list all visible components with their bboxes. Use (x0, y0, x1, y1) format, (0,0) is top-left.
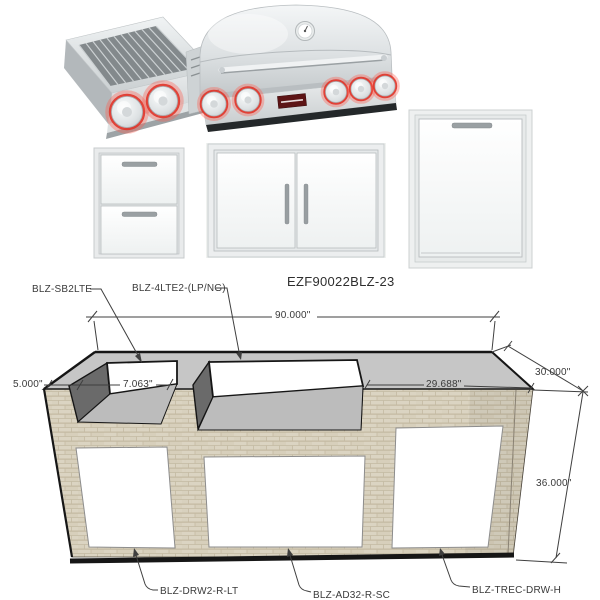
part-label-side-burner: BLZ-SB2LTE (32, 284, 92, 295)
door-left (217, 153, 295, 248)
part-label-double-door: BLZ-AD32-R-SC (313, 590, 390, 600)
burner-knob-right (145, 83, 182, 120)
grill-hood-highlight (208, 14, 288, 54)
leader-grill (216, 288, 240, 357)
grill-thermometer (296, 22, 315, 41)
dim-label-burner-cutout: 7.063" (123, 379, 153, 390)
door-left-handle (285, 184, 289, 224)
door-right (297, 153, 376, 248)
part-label-trash-drawer: BLZ-TREC-DRW-H (472, 585, 561, 596)
dim-label-right-counter: 29.688" (426, 379, 462, 390)
double-door-photo (206, 143, 386, 258)
dim-label-overall-height: 36.000" (536, 478, 572, 489)
burner-knob-left (108, 93, 147, 132)
drawer-top-handle (122, 162, 157, 167)
double-drawer-photo (94, 148, 184, 258)
drawer-bottom-handle (122, 212, 157, 217)
opening-double-door (204, 456, 365, 547)
island-diagram-svg (0, 0, 600, 600)
dim-label-left-inset: 5.000" (13, 379, 43, 390)
grill-logo-plate (277, 94, 306, 109)
opening-trash-drawer (392, 426, 503, 548)
dim-height-line (556, 392, 583, 558)
door-right-handle (304, 184, 308, 224)
dim-height-tick (551, 553, 560, 563)
trash-handle (452, 123, 492, 128)
kit-model-title: EZF90022BLZ-23 (287, 276, 395, 287)
dim-height-extension (516, 560, 567, 563)
trash-drawer-photo (409, 110, 532, 268)
dim-label-overall-depth: 30.000" (535, 367, 571, 378)
dim-label-overall-width: 90.000" (275, 310, 311, 321)
spec-sheet-canvas: EZF90022BLZ-23 BLZ-SB2LTE BLZ-4LTE2-(LP/… (0, 0, 600, 600)
opening-double-drawer (76, 447, 175, 548)
part-label-double-drawer: BLZ-DRW2-R-LT (160, 586, 238, 597)
grill-photo (186, 5, 398, 132)
part-label-grill: BLZ-4LTE2-(LP/NG) (132, 283, 226, 294)
trash-door (419, 119, 522, 257)
dim-width-extensions (94, 321, 495, 350)
grill-cutout (193, 360, 363, 430)
